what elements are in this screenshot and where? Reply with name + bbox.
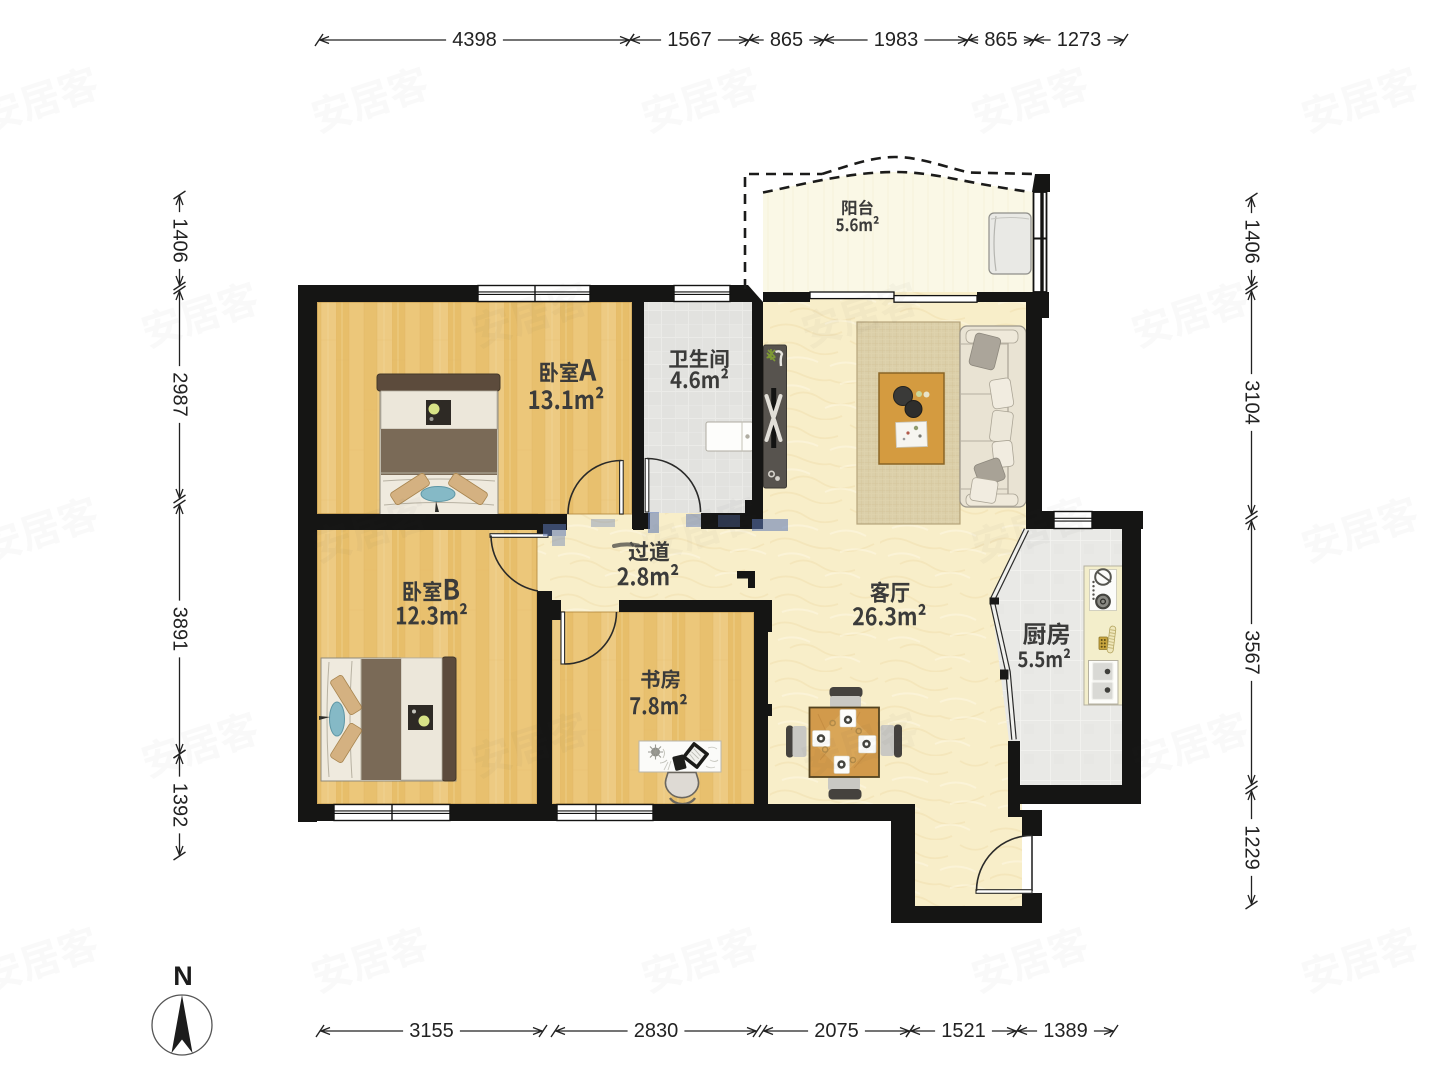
svg-text:2987: 2987 xyxy=(169,372,191,417)
svg-text:4398: 4398 xyxy=(452,29,497,51)
svg-text:3104: 3104 xyxy=(1241,380,1263,425)
svg-text:1983: 1983 xyxy=(874,29,919,51)
svg-text:2830: 2830 xyxy=(634,1020,679,1042)
svg-text:865: 865 xyxy=(984,29,1017,51)
svg-text:3567: 3567 xyxy=(1241,630,1263,675)
svg-text:1273: 1273 xyxy=(1057,29,1102,51)
svg-text:N: N xyxy=(173,961,193,991)
svg-text:1229: 1229 xyxy=(1241,825,1263,870)
svg-text:865: 865 xyxy=(770,29,803,51)
svg-text:1406: 1406 xyxy=(169,218,191,263)
svg-text:1392: 1392 xyxy=(169,783,191,828)
svg-text:1406: 1406 xyxy=(1241,219,1263,264)
svg-text:3891: 3891 xyxy=(169,607,191,652)
svg-text:1521: 1521 xyxy=(941,1020,986,1042)
svg-text:3155: 3155 xyxy=(409,1020,454,1042)
svg-text:1389: 1389 xyxy=(1043,1020,1088,1042)
svg-text:1567: 1567 xyxy=(667,29,712,51)
svg-text:2075: 2075 xyxy=(814,1020,859,1042)
